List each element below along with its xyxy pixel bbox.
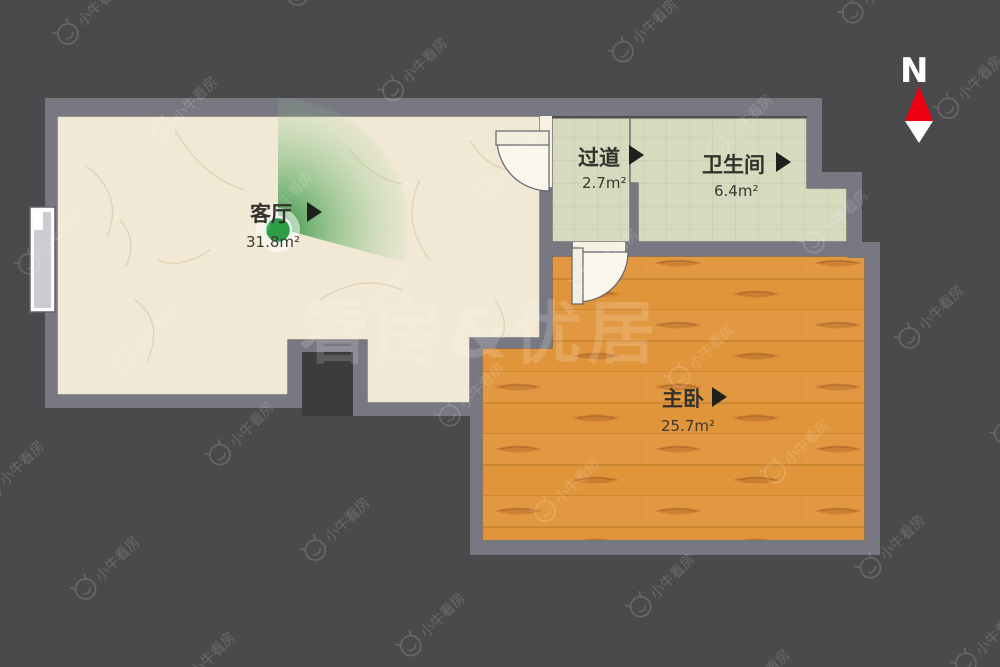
watermark-center-text: 看房&优居: [300, 295, 661, 374]
bathroom-area: 6.4m²: [714, 182, 758, 200]
bathroom-name: 卫生间: [702, 153, 765, 177]
floorplan-svg: 小牛看房: [0, 0, 1000, 667]
master-bedroom-name: 主卧: [662, 387, 704, 411]
north-label: N: [900, 51, 928, 91]
living-room-name: 客厅: [250, 202, 292, 226]
living-room-area: 31.8m²: [246, 233, 300, 251]
master-bedroom-area: 25.7m²: [661, 417, 715, 435]
floorplan-page: 小牛看房: [0, 0, 1000, 667]
corridor-area: 2.7m²: [582, 174, 626, 192]
corridor-name: 过道: [578, 146, 620, 170]
